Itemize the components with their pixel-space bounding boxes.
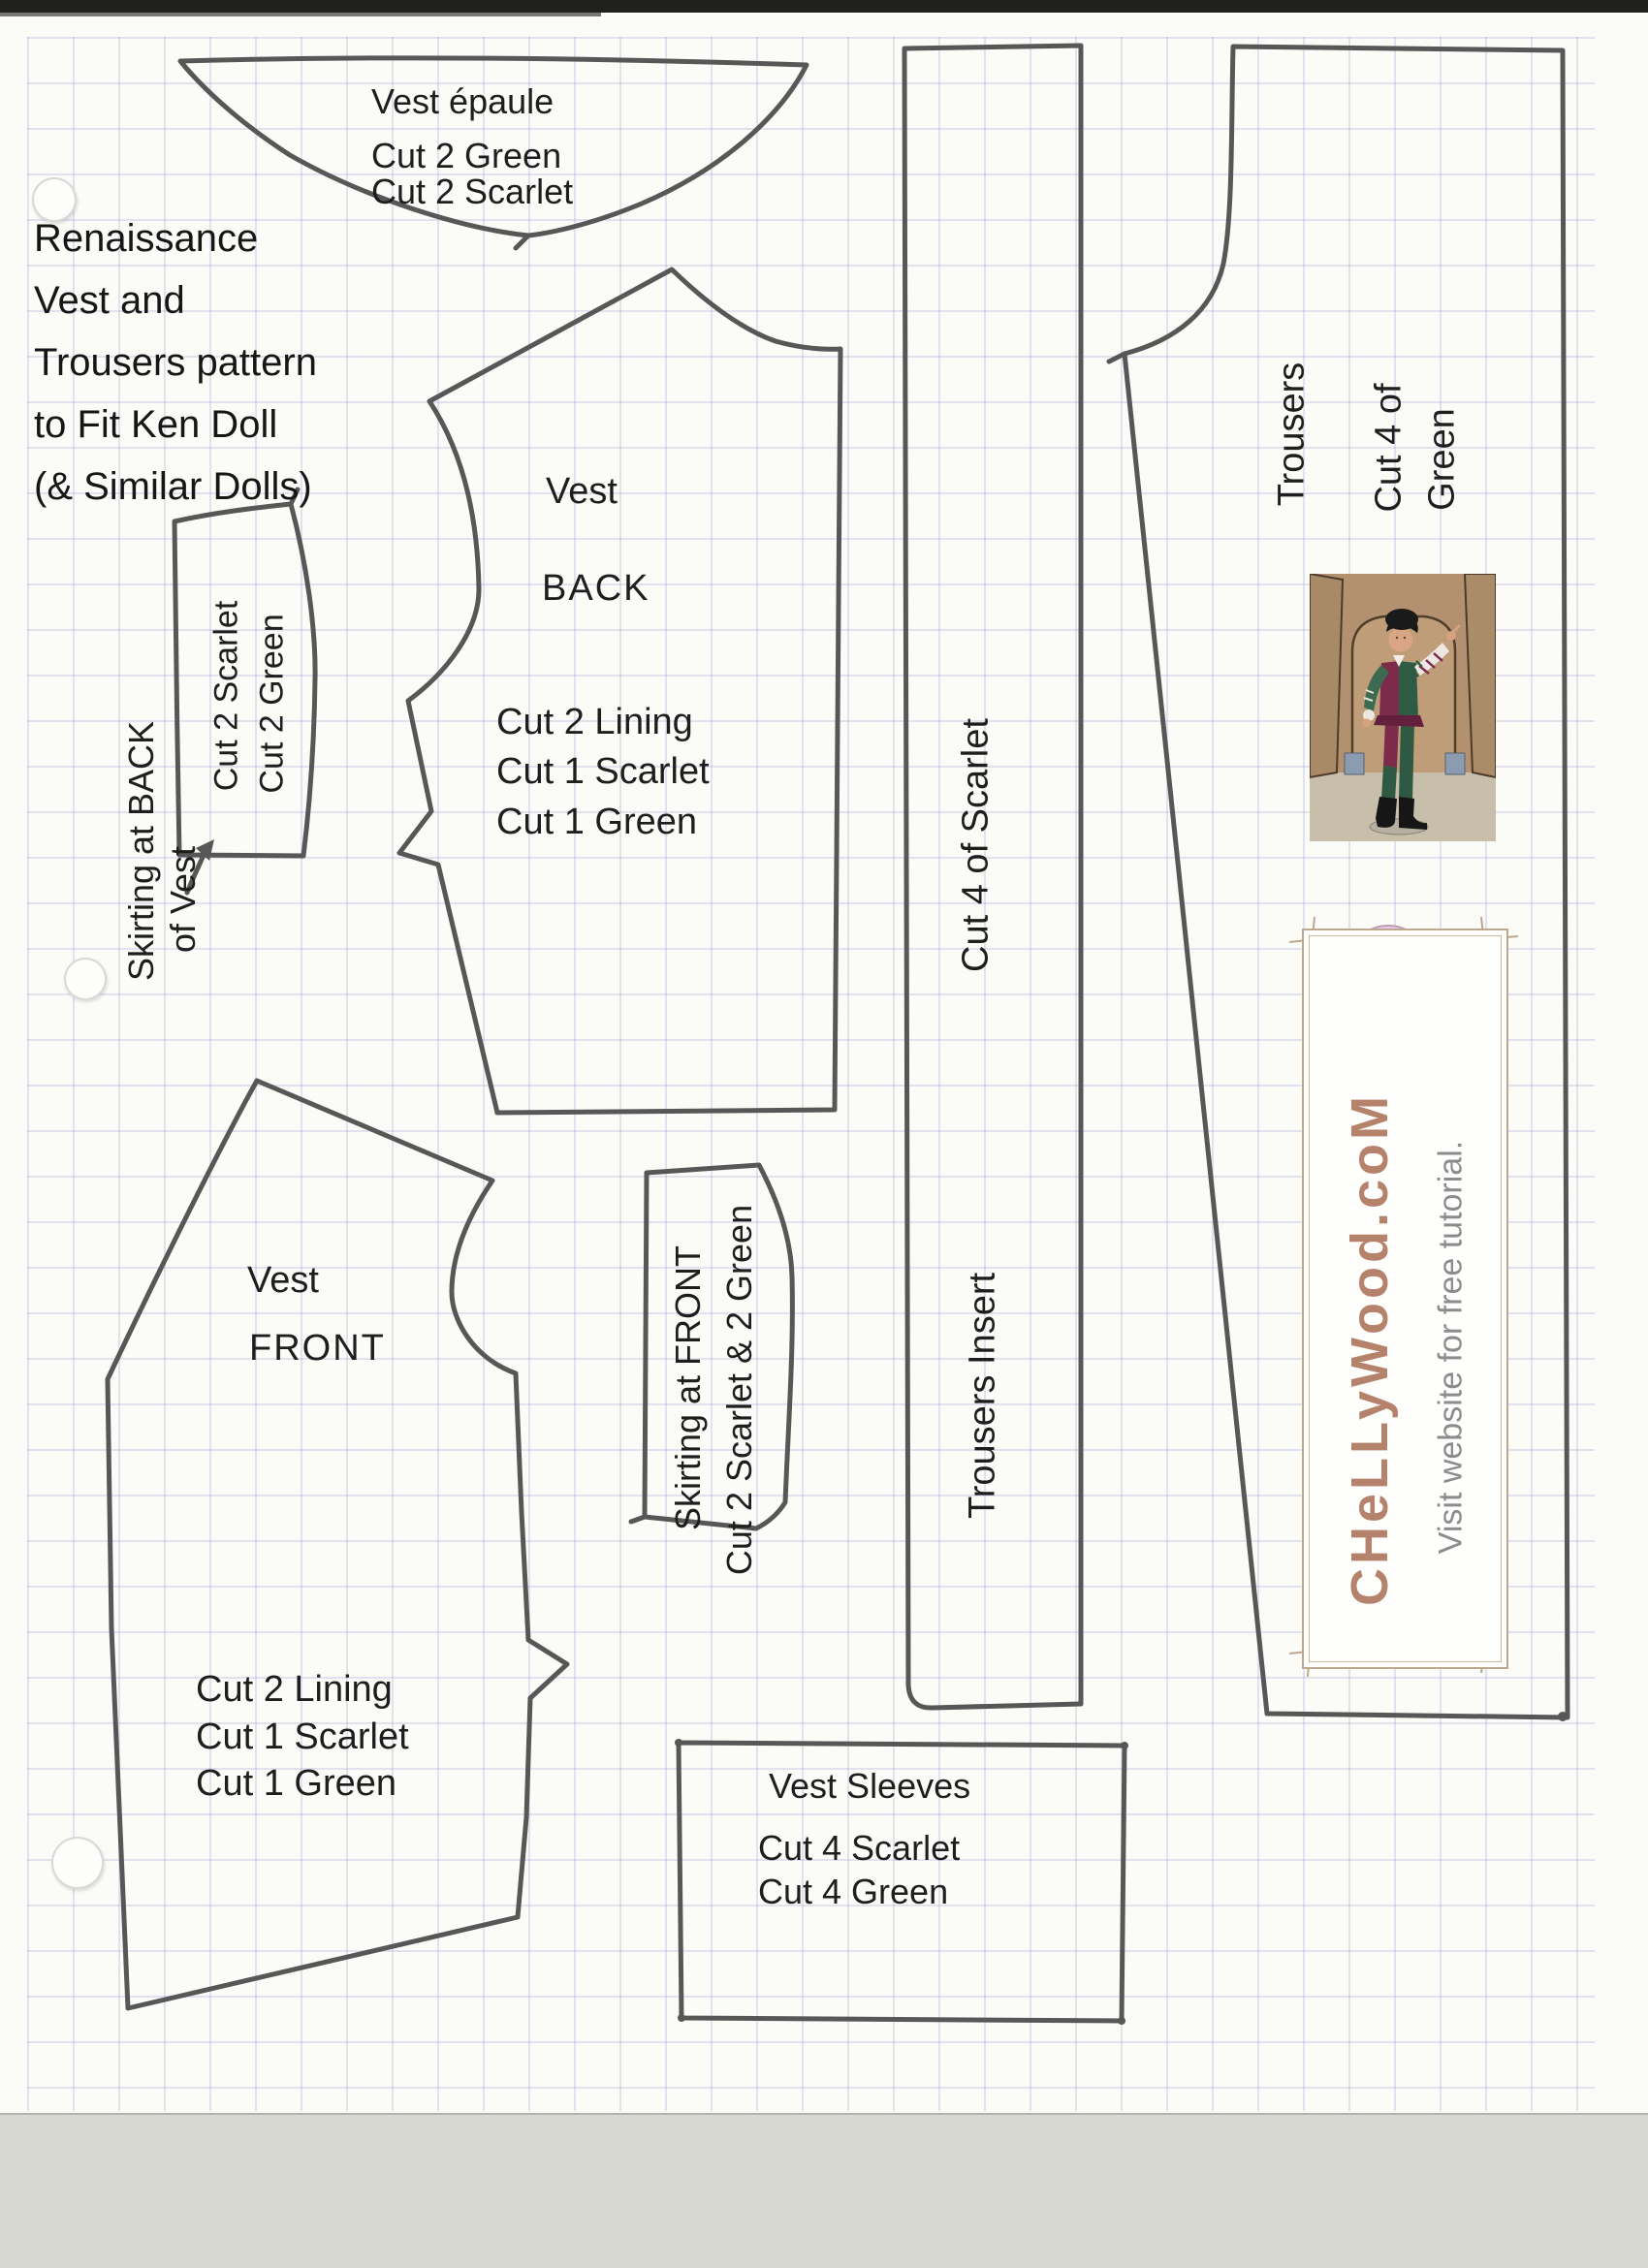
- scan-bed-strip: [0, 2113, 1648, 2268]
- vest-sleeves-cut1: Cut 4 Scarlet: [758, 1828, 960, 1869]
- corner-dot: [1558, 1712, 1568, 1721]
- vest-epaule-name: Vest épaule: [371, 81, 554, 122]
- vest-front-cut: Cut 1 Green: [196, 1763, 396, 1805]
- vest-back-outline: [399, 269, 840, 1113]
- logo-inner-border: [1309, 935, 1502, 1662]
- vest-back-name2: BACK: [542, 568, 650, 610]
- vest-front-cut: Cut 2 Lining: [196, 1669, 393, 1711]
- doll-photo: [1310, 574, 1496, 841]
- skirting-back-label2: of Vest: [163, 846, 204, 953]
- vest-front-name2: FRONT: [249, 1328, 386, 1370]
- trousers-insert-cut: Cut 4 of Scarlet: [956, 718, 998, 972]
- vest-back-cut: Cut 1 Scarlet: [496, 751, 710, 793]
- trousers-cut2: Green: [1422, 408, 1464, 511]
- page-background: Renaissance Vest and Trousers pattern to…: [0, 0, 1648, 2266]
- title-line: Vest and: [34, 269, 317, 331]
- vest-epaule-cut2: Cut 2 Scarlet: [371, 172, 573, 212]
- corner-dot: [1118, 2017, 1125, 2025]
- vest-epaule-notch-tick: [516, 236, 528, 248]
- vest-sleeves-cut2: Cut 4 Green: [758, 1872, 948, 1912]
- vest-back-cut: Cut 1 Green: [496, 802, 697, 843]
- skirting-back-cut1: Cut 2 Scarlet: [208, 601, 246, 792]
- corner-dot: [1121, 1742, 1128, 1749]
- vest-epaule-cut1: Cut 2 Green: [371, 136, 561, 176]
- vest-back-name1: Vest: [546, 471, 618, 513]
- trousers-crotch-tick: [1109, 354, 1125, 362]
- brand-text: CHeLLyWood.coM: [1340, 1092, 1400, 1606]
- title-line: Trousers pattern: [34, 331, 317, 394]
- scanned-pattern-page: { "document": { "title_lines": ["Renaiss…: [0, 0, 1648, 2266]
- skirting-back-cut2: Cut 2 Green: [254, 614, 292, 793]
- title-line: (& Similar Dolls): [34, 456, 317, 518]
- logo-box: [1302, 929, 1508, 1669]
- corner-dot: [678, 2014, 685, 2022]
- trousers-name: Trousers: [1272, 362, 1314, 507]
- trousers-insert-name: Trousers Insert: [963, 1273, 1004, 1519]
- skirting-front-label: Skirting at FRONT: [668, 1245, 709, 1530]
- vest-front-outline: [108, 1081, 567, 2008]
- skirting-front-tick: [631, 1517, 645, 1522]
- title-line: to Fit Ken Doll: [34, 394, 317, 456]
- vest-front-name1: Vest: [247, 1260, 319, 1302]
- title-line: Renaissance: [34, 207, 317, 269]
- photo-left-wall: [1310, 574, 1343, 777]
- skirting-back-label1: Skirting at BACK: [121, 721, 162, 981]
- trousers-cut1: Cut 4 of: [1369, 383, 1410, 512]
- page-title: Renaissance Vest and Trousers pattern to…: [34, 207, 317, 518]
- vest-back-cut: Cut 2 Lining: [496, 702, 693, 743]
- doll-photo-illustration: [1310, 574, 1496, 841]
- vest-front-cut: Cut 1 Scarlet: [196, 1717, 409, 1758]
- skirting-front-cut: Cut 2 Scarlet & 2 Green: [719, 1205, 760, 1575]
- photo-pillar-base: [1345, 753, 1364, 774]
- brand-tagline: Visit website for free tutorial.: [1433, 1141, 1471, 1554]
- vest-sleeves-name: Vest Sleeves: [769, 1766, 970, 1807]
- photo-pillar-base: [1445, 753, 1465, 774]
- corner-dot: [675, 1739, 682, 1747]
